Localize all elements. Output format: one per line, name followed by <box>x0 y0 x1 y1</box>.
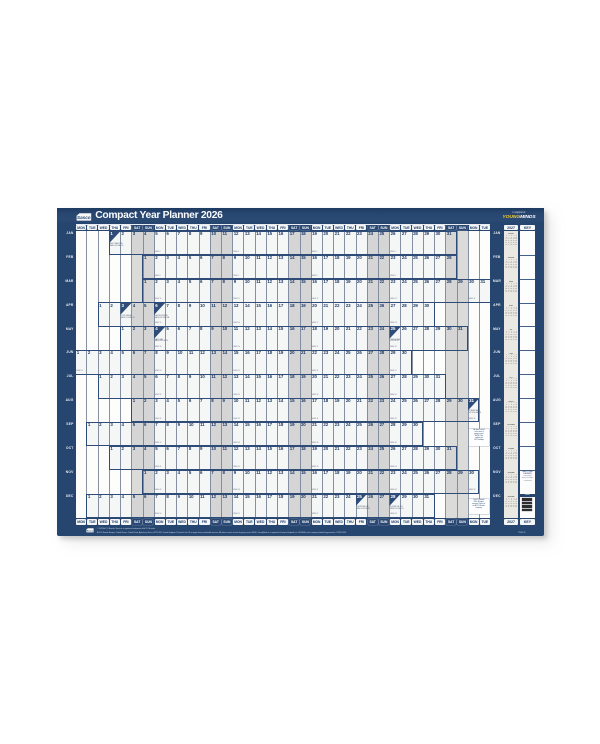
svg-text:Sasco: Sasco <box>77 215 91 220</box>
svg-text:Sasco: Sasco <box>86 530 93 532</box>
